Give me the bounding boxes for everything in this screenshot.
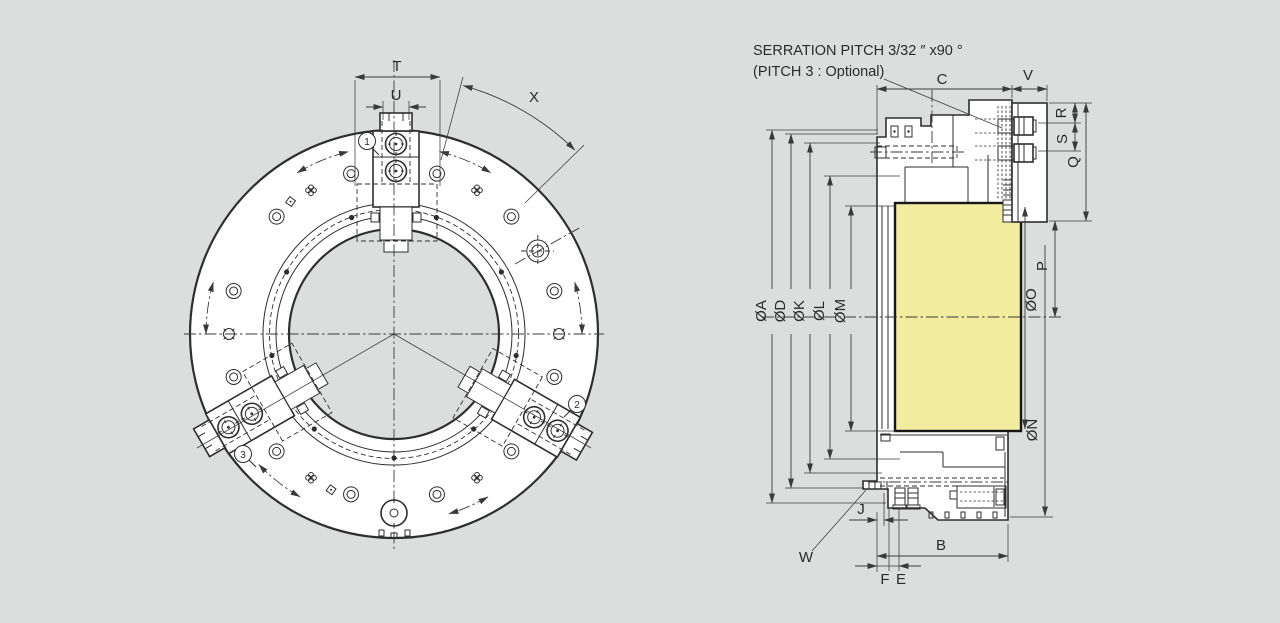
face-screw	[471, 426, 476, 431]
dim-label-J: J	[857, 501, 865, 518]
face-screw	[434, 215, 439, 220]
dim-label-P: P	[1034, 261, 1051, 271]
dim-label-D: ØD	[772, 300, 789, 323]
dim-label-K: ØK	[791, 300, 808, 322]
face-screw	[514, 353, 519, 358]
dim-label-T: T	[392, 58, 401, 75]
dim-label-U: U	[391, 87, 402, 104]
face-screw	[349, 215, 354, 220]
dim-label-A: ØA	[753, 300, 770, 322]
dim-label-E: E	[896, 571, 906, 588]
dim-label-R: R	[1053, 107, 1070, 118]
dim-label-S: S	[1054, 134, 1071, 144]
face-screw	[312, 426, 317, 431]
dim-label-Q: Q	[1065, 156, 1082, 168]
dim-label-V: V	[1023, 67, 1033, 84]
dim-label-O: ØO	[1023, 288, 1040, 311]
face-screw	[284, 269, 289, 274]
dim-label-F: F	[880, 571, 889, 588]
dim-label-W: W	[799, 549, 814, 566]
balloon-1-label: 1	[364, 137, 370, 148]
dim-label-C: C	[937, 71, 948, 88]
face-screw	[269, 353, 274, 358]
chuck-technical-drawing: T U X 1 2 3	[0, 0, 1280, 623]
dim-label-N: ØN	[1024, 419, 1041, 442]
face-screw	[499, 269, 504, 274]
dim-label-X: X	[529, 89, 539, 106]
dim-label-M: ØM	[832, 299, 849, 323]
serration-note-line1: SERRATION PITCH 3/32 ″ x90 °	[753, 43, 963, 59]
balloon-2-label: 2	[574, 400, 580, 411]
dim-label-L: ØL	[811, 301, 828, 321]
serration-note-line2: (PITCH 3 : Optional)	[753, 64, 884, 80]
face-screw	[391, 455, 396, 460]
balloon-3-label: 3	[240, 450, 246, 461]
dim-label-B: B	[936, 537, 946, 554]
